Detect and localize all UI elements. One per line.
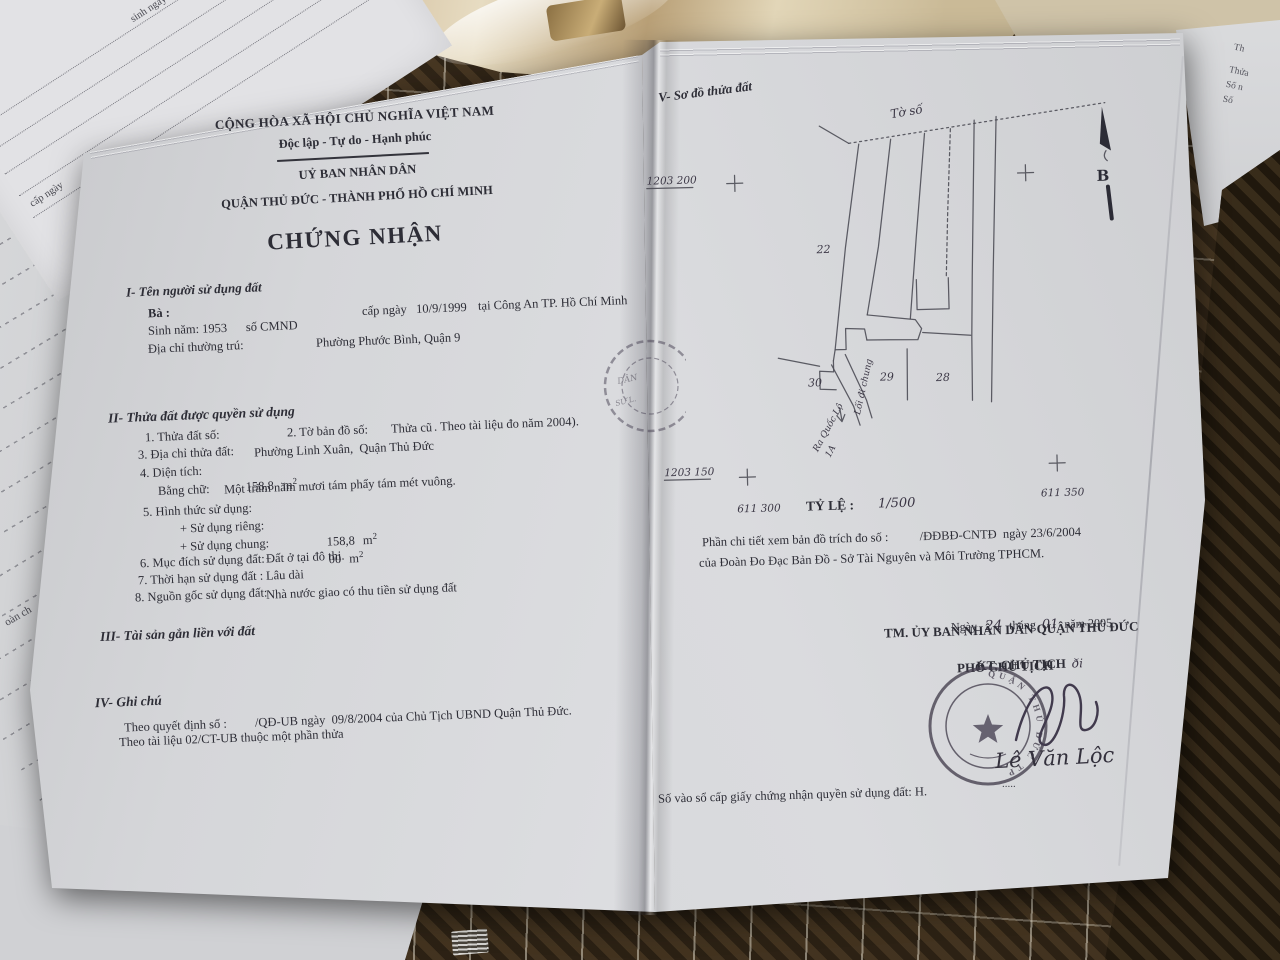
- map-sheet-label: 2. Tờ bản đồ số:: [287, 422, 369, 441]
- survey-year-note: . Theo tài liệu đo năm 2004).: [434, 414, 579, 435]
- parcel-22-label: 22: [815, 243, 830, 256]
- parcel-30-label: 30: [808, 376, 822, 389]
- issuer-line-2: QUẬN THỦ ĐỨC - THÀNH PHỐ HỒ CHÍ MINH: [212, 182, 502, 213]
- photo-of-land-certificate: CHẤP sinh ngày Tại cấp ngày oàn ch Th Th…: [0, 0, 1280, 960]
- parcel-address-label: 3. Địa chỉ thửa đất:: [138, 444, 235, 463]
- note-decision: Theo quyết định số : /QĐ-UB ngày 09/8/20…: [124, 703, 572, 736]
- map-parcel-line: [984, 116, 1003, 401]
- coord-label-top-left: 1203 200: [647, 174, 698, 187]
- map-parcel-line: [906, 349, 908, 400]
- road-label-2: 1A: [824, 443, 839, 459]
- use-form-label: 5. Hình thức sử dụng:: [143, 501, 253, 521]
- registry-line: Số vào sổ cấp giấy chứng nhận quyền sử d…: [658, 784, 927, 807]
- walkway-label: Lối đi chung: [852, 358, 875, 417]
- private-unit: m: [363, 532, 373, 546]
- coord-label-left: 611 300: [737, 502, 781, 515]
- area-label: 4. Diện tích:: [140, 464, 203, 482]
- residence-label: Địa chỉ thường trú:: [148, 338, 244, 357]
- cross-mark: [727, 175, 743, 191]
- holder-label: Bà :: [148, 306, 170, 322]
- id-issue-date: cấp ngày 10/9/1999: [362, 300, 467, 320]
- signature-dots: .....: [1002, 778, 1016, 792]
- birth-and-id-label: Sinh năm: 1953 số CMND: [148, 318, 298, 339]
- id-issue-place: tại Công An TP. Hồ Chí Minh: [478, 293, 628, 314]
- certificate-title: CHỨNG NHẬN: [244, 218, 465, 258]
- map-dashed-line: [942, 129, 954, 278]
- section-ii-heading: II- Thửa đất được quyền sử dụng: [108, 403, 295, 427]
- parcel-number-label: 1. Thửa đất số:: [145, 428, 220, 446]
- area-words-label: Bằng chữ:: [158, 482, 210, 500]
- origin-value: Nhà nước giao có thu tiền sử dụng đất: [266, 580, 457, 603]
- private-use-label: + Sử dụng riêng:: [180, 518, 265, 537]
- map-left-steps: [835, 328, 868, 350]
- old-parcel-note: Thửa cũ: [391, 420, 433, 437]
- cross-mark: [739, 469, 755, 485]
- cross-mark: [1049, 455, 1065, 471]
- map-parcel-line: [965, 120, 981, 400]
- map-boundary: [819, 125, 848, 144]
- scale-label: TỶ LỆ :: [806, 497, 854, 515]
- duration-value: Lâu dài: [266, 567, 304, 584]
- section-iii-heading: III- Tài sản gắn liền với đất: [100, 623, 256, 646]
- map-dotted-boundary: [848, 103, 1106, 144]
- map-parcel30-top: [778, 357, 819, 367]
- map-parcel-line: [863, 139, 896, 315]
- cross-mark: [1017, 165, 1033, 181]
- scale-value: 1/500: [878, 495, 916, 512]
- parcel-address-value: Phường Linh Xuân, Quận Thủ Đức: [254, 439, 434, 462]
- private-sup: 2: [372, 530, 377, 540]
- detail-note-2: của Đoàn Đo Đạc Bản Đồ - Sở Tài Nguyên v…: [699, 546, 1045, 571]
- shared-sup: 2: [359, 549, 364, 559]
- map-subject-band: [866, 314, 922, 341]
- north-label: B: [1096, 167, 1109, 185]
- section-iv-heading: IV- Ghi chú: [95, 693, 162, 712]
- national-motto: Độc lập - Tự do - Hạnh phúc: [255, 128, 456, 154]
- cadastral-sketch: Tờ số 22 30 29 28 Lối đi chung Ra Quốc: [643, 89, 1164, 522]
- motto-underline: [277, 152, 429, 161]
- coord-label-bottom-left: 1203 150: [664, 466, 715, 479]
- stamp-star-icon: [973, 714, 1003, 743]
- north-arrow-icon: B: [1095, 107, 1113, 219]
- fold-stamp-fragment: DÂN: [615, 371, 639, 387]
- origin-label: 8. Nguồn gốc sử dụng đất:: [135, 585, 268, 606]
- map-step-rect: [916, 278, 949, 310]
- parcel-29-label: 29: [879, 370, 894, 383]
- section-i-heading: I- Tên người sử dụng đất: [126, 279, 262, 300]
- coord-underline: [647, 187, 693, 188]
- map-sheet-number-label: Tờ số: [889, 101, 925, 121]
- residence-value: Phường Phước Bình, Quận 9: [316, 330, 461, 351]
- map-band-connector: [923, 331, 971, 336]
- coord-underline: [664, 479, 710, 480]
- purpose-value: Đất ở tại đô thị.: [266, 548, 345, 567]
- fold-stamp-fragment: SỬ L.: [614, 393, 637, 408]
- parcel-28-label: 28: [935, 371, 950, 384]
- coord-label-right: 611 350: [1041, 486, 1085, 499]
- issuer-line-1: UỶ BAN NHÂN DÂN: [275, 161, 441, 185]
- map-parcel-line: [905, 133, 929, 318]
- shared-unit: m: [349, 551, 359, 565]
